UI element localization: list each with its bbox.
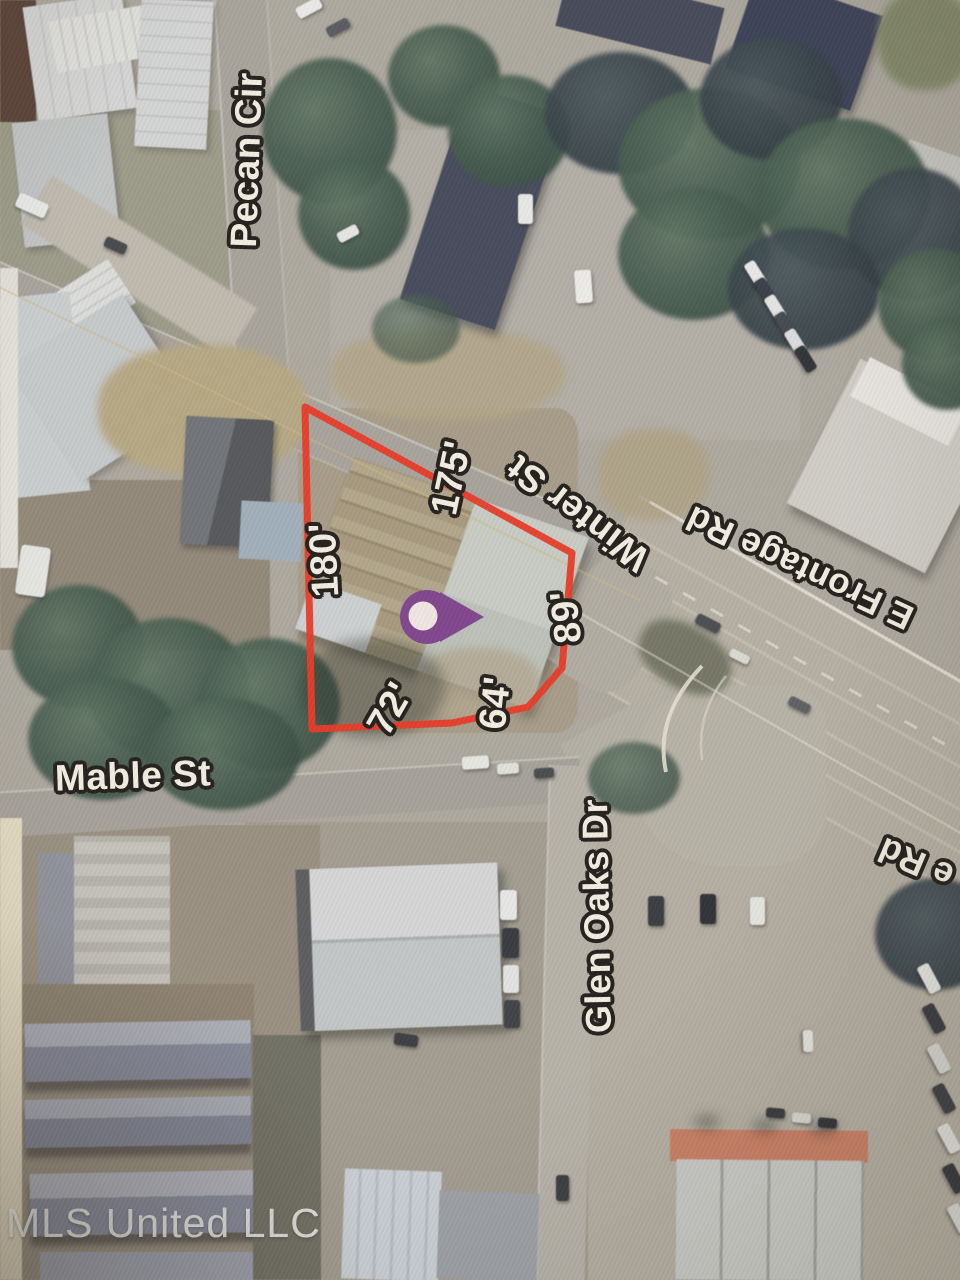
street-label-pecan-cir: Pecan Cir xyxy=(223,72,271,249)
street-label-mable-st: Mable St xyxy=(54,752,212,799)
road-curb-line xyxy=(664,666,702,772)
road-curb-line xyxy=(701,676,726,760)
location-pin-icon xyxy=(400,590,484,644)
map-overlay xyxy=(0,0,960,1280)
dimension-label-bottom-right: 64' xyxy=(472,674,520,731)
dimension-label-left: 180' xyxy=(302,522,349,599)
watermark: MLS United LLC xyxy=(6,1200,321,1247)
street-label-glen-oaks-dr: Glen Oaks Dr xyxy=(574,799,620,1034)
aerial-photo: Pecan Cir Winter St E Frontage Rd e Rd M… xyxy=(0,0,960,1280)
lane-line xyxy=(575,610,960,834)
dimension-label-right: 89' xyxy=(543,588,591,645)
